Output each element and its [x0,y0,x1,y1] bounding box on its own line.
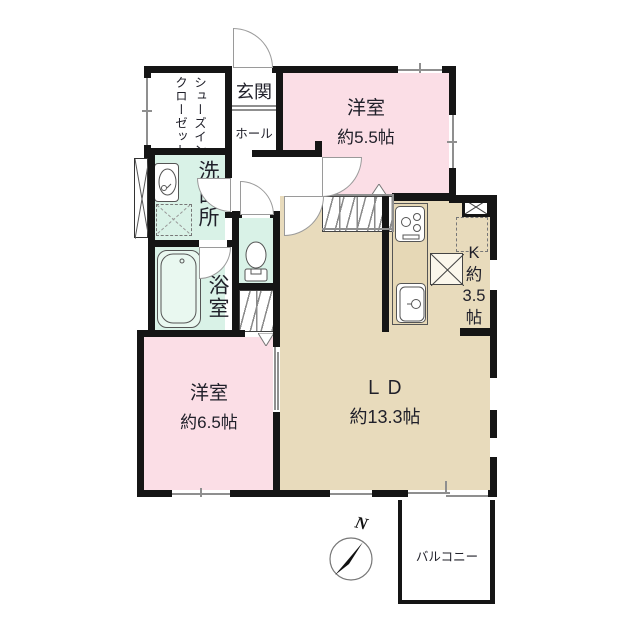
window-or-door-line [330,493,372,495]
shoes-closet-label-line1: シューズイン [189,76,208,156]
window-or-door-line [277,352,279,410]
wall-segment [460,328,497,336]
pipe-space-left-icon [134,158,148,238]
wall-segment [148,155,155,337]
window-or-door-line [446,495,488,497]
wall-segment [273,290,280,330]
wall-segment [488,490,497,497]
compass: N [322,512,380,584]
bathtub-icon [157,250,201,328]
kitchen-label-k: K [461,243,487,265]
wall-segment [449,66,456,115]
window-or-door-line [447,141,457,143]
wall-segment [232,218,239,337]
window-or-door-line [274,347,276,410]
wall-segment [227,240,232,247]
compass-north-label: N [352,512,370,534]
wall-segment [137,490,172,497]
wall-segment [372,490,408,497]
wall-segment [490,500,495,604]
wall-segment [144,148,232,155]
wall-segment [382,195,389,332]
window-or-door-line [232,105,276,107]
kitchen-sink-icon [396,283,426,323]
wall-segment [225,66,232,155]
window-or-door-line [146,78,148,145]
window-or-door-line [142,110,152,112]
western-room-6_5-label: 洋室 約6.5帖 [148,378,270,433]
kitchen-label-approx: 約 [461,265,487,287]
balcony-label: バルコニー [408,546,486,565]
wall-segment [225,155,232,178]
kitchen-island-icon [430,253,463,285]
hall-label: ホール [230,123,278,142]
wall-segment [398,500,402,604]
window-or-door-line [408,492,450,494]
window-or-door-line [232,109,276,111]
shoes-closet-label: シューズイン クローゼット [170,76,208,156]
bathroom-label: 浴室 [202,274,232,330]
wall-segment [315,141,322,157]
wall-segment [137,330,245,337]
wall-segment [490,457,497,490]
kitchen-label-unit: 帖 [461,308,487,330]
washbasin-icon [154,163,179,202]
entrance-door-swing [233,28,273,68]
kitchen-label: K 約 3.5 帖 [461,243,487,329]
wall-segment [398,600,495,604]
window-or-door-line [445,481,447,492]
western-room-5_5-label: 洋室 約5.5帖 [306,93,426,148]
western-room-6_5-size: 約6.5帖 [148,408,270,433]
living-dining-name: ＬＤ [320,373,450,400]
wall-segment [230,490,330,497]
wall-segment [273,211,280,290]
wall-segment [225,212,232,218]
wall-segment [137,330,144,497]
window-or-door-line [392,196,394,232]
sliding-door-triangle-icon [258,333,274,346]
closet-west-room-6_5 [239,290,275,332]
wall-segment [155,240,199,247]
floor-plan: N 玄関 ホール シューズイン クローゼット 洗面所 浴室 洋室 約5.5帖 洋… [0,0,640,640]
wall-segment [392,193,456,201]
kitchen-label-size: 3.5 [461,286,487,308]
wall-segment [490,410,497,438]
living-dining-size: 約13.3帖 [320,403,450,429]
wall-segment [144,66,151,78]
window-or-door-line [200,488,202,497]
wall-segment [272,66,398,73]
stove-icon [395,206,425,242]
wall-segment [276,66,283,150]
wall-segment [252,150,322,157]
shoes-closet-label-line2: クローゼット [170,76,189,156]
living-dining-label: ＬＤ 約13.3帖 [320,373,450,429]
western-room-5_5-name: 洋室 [306,93,426,120]
western-room-5_5-size: 約5.5帖 [306,123,426,148]
wall-segment [273,330,280,347]
window-or-door-line [322,228,394,230]
compass-needle-icon [335,542,363,575]
western-room-6_5-name: 洋室 [148,378,270,405]
wall-segment [490,195,497,260]
washer-space-icon [156,204,192,236]
entrance-label: 玄関 [230,78,278,104]
window-or-door-line [419,63,421,73]
wall-segment [144,66,232,73]
wall-segment [273,412,280,497]
toilet-icon [243,240,269,285]
